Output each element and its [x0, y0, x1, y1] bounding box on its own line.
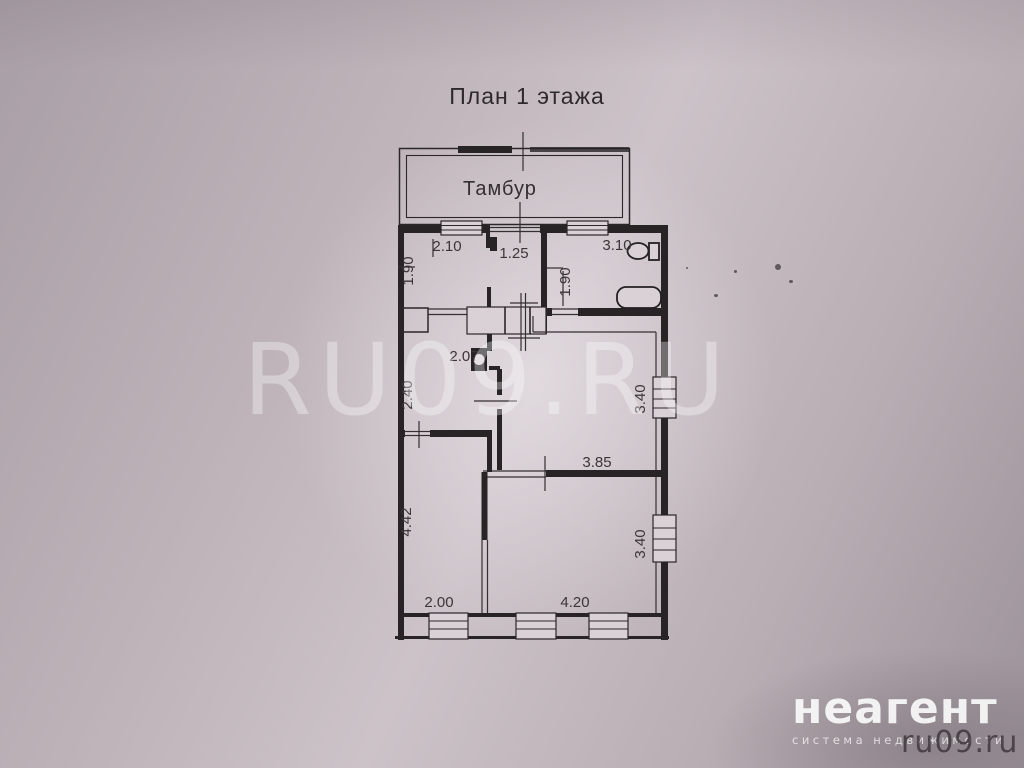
wall-segment	[458, 146, 512, 153]
wall-segment	[661, 225, 668, 640]
dim-kitchen-depth: 2.40	[399, 380, 416, 409]
wall-segment	[497, 409, 502, 470]
dim-living-depth: 3.40	[632, 384, 649, 413]
floorplan-drawing: План 1 этажа Тамбур	[0, 0, 1024, 768]
vent-block	[467, 307, 546, 334]
site-watermark: ru09.ru	[901, 725, 1018, 760]
inner-walls	[482, 316, 664, 613]
dim-left-room-depth: 4.42	[398, 507, 415, 536]
window-symbol	[653, 377, 676, 418]
dim-right-room-width: 4.20	[560, 594, 589, 611]
window-symbol	[653, 515, 676, 562]
dim-living-width: 3.85	[582, 454, 611, 471]
dim-hall-depth: 1.90	[400, 256, 417, 285]
page-title: План 1 этажа	[449, 83, 605, 109]
door-jamb	[490, 237, 497, 251]
wall-segment	[497, 369, 502, 395]
wall-segment	[487, 334, 492, 351]
wall-segment	[487, 430, 492, 472]
window-symbol	[429, 613, 468, 639]
dim-hall-width: 2.10	[432, 238, 461, 255]
chimney-outline	[400, 308, 428, 332]
wall-segment	[578, 308, 663, 316]
window-symbol	[516, 613, 556, 639]
toilet-tank-icon	[649, 243, 659, 260]
dimension-labels: 2.10 1.25 3.10 1.90 1.90 2.07 2.40 3.40 …	[398, 237, 649, 611]
window-symbol	[589, 613, 628, 639]
window-symbol	[441, 221, 482, 235]
vestibule-label: Тамбур	[463, 178, 537, 200]
scanned-floorplan-photo: План 1 этажа Тамбур	[0, 0, 1024, 768]
dim-kitchen-width: 2.07	[449, 348, 478, 365]
dim-left-room-width: 2.00	[424, 594, 453, 611]
wall-segment	[530, 147, 629, 152]
wall-segment	[486, 233, 490, 248]
dim-entry-width: 1.25	[499, 245, 528, 262]
window-symbols-bottom	[429, 613, 628, 639]
window-symbol	[567, 221, 608, 235]
wall-segment	[482, 472, 488, 540]
dim-bath-width: 3.10	[602, 237, 631, 254]
dim-right-room-depth: 3.40	[632, 529, 649, 558]
wall-segment	[487, 287, 491, 307]
wall-segment	[546, 470, 663, 477]
dim-bath-depth: 1.90	[557, 267, 574, 296]
bathtub-icon	[617, 287, 661, 308]
wall-segment	[547, 308, 552, 316]
